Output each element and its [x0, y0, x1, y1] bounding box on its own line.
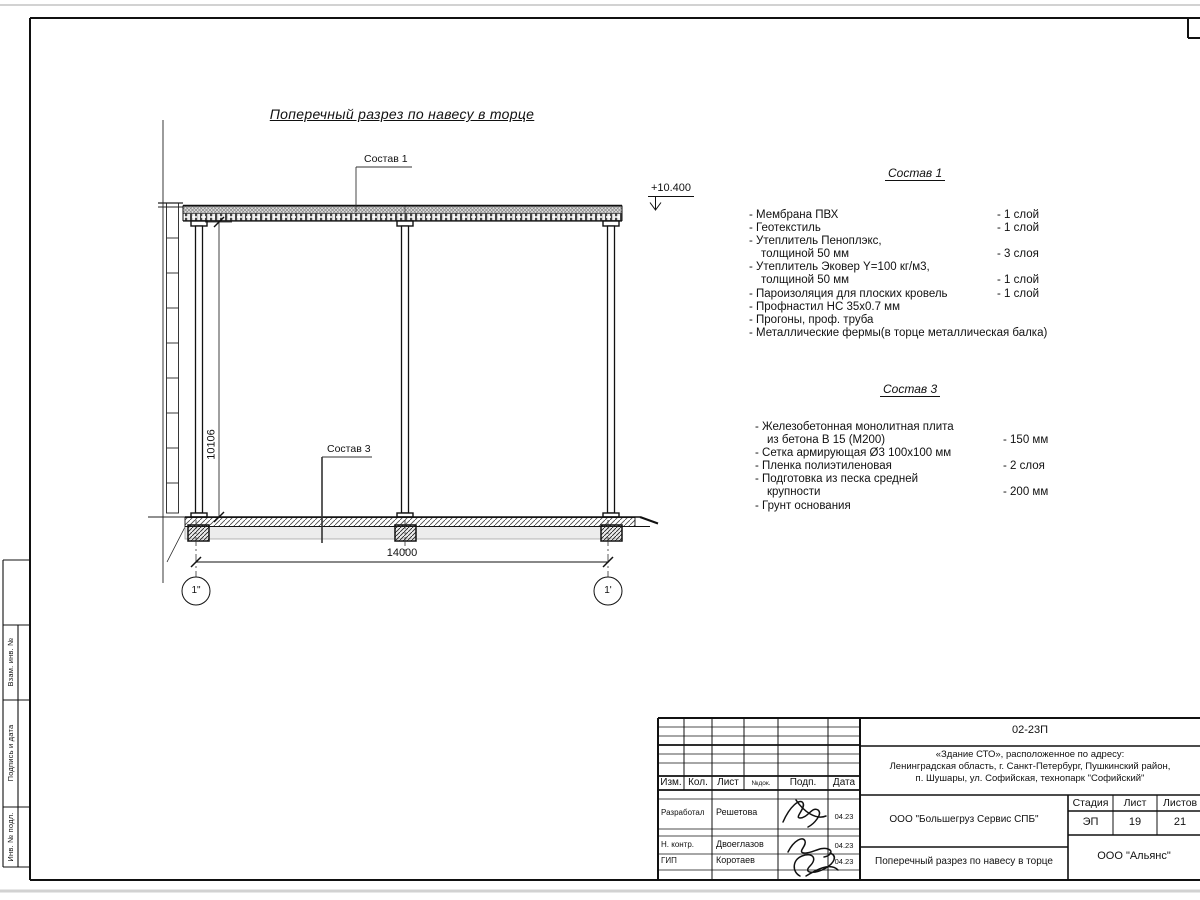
col-izm: Изм.	[658, 777, 684, 788]
dim-line-height	[205, 217, 232, 522]
drawing-title: Поперечный разрез по навесу в торце	[240, 106, 564, 122]
dim-width-value: 14000	[372, 547, 432, 559]
name-ncontrol: Двоеглазов	[716, 839, 764, 849]
elevation-value: +10.400	[646, 182, 696, 194]
side-stamp-label-inv: Инв. № подл.	[6, 802, 16, 872]
sheet-value: 19	[1113, 816, 1157, 828]
material-item: - Утеплитель Пеноплэкс, толщиной 50 мм- …	[749, 235, 1200, 261]
material-qty: - 1 слой	[997, 222, 1039, 235]
material-item: - Металлические фермы(в торце металличес…	[749, 327, 1200, 340]
sostav1-heading: Состав 1	[885, 166, 945, 181]
sheet-label: Лист	[1113, 797, 1157, 809]
axis-label-right: 1'	[594, 585, 622, 596]
titleblock-doc-title: Поперечный разрез по навесу в торце	[862, 856, 1066, 867]
col-ndok: №док.	[744, 780, 778, 787]
sheets-value: 21	[1160, 816, 1200, 828]
drawing-sheet: Поперечный разрез по навесу в торце Сост…	[0, 0, 1200, 900]
sheets-label: Листов	[1163, 797, 1197, 809]
material-item: - Профнастил НС 35х0.7 мм	[749, 301, 1200, 314]
ground-slab	[185, 517, 658, 539]
material-item: - Пароизоляция для плоских кровель- 1 сл…	[749, 288, 1200, 301]
material-item: - Мембрана ПВХ- 1 слой	[749, 209, 1200, 222]
project-address-line3: п. Шушары, ул. Софийская, технопарк "Соф…	[860, 773, 1200, 784]
leader-label-sostav3: Состав 3	[327, 443, 371, 455]
client-org: ООО "Большегруз Сервис СПБ"	[862, 814, 1066, 825]
material-name: - Прогоны, проф. труба	[749, 314, 873, 326]
roof-assembly	[183, 206, 622, 222]
project-address-line1: «Здание СТО», расположенное по адресу:	[860, 749, 1200, 760]
material-name: - Утеплитель Эковер Y=100 кг/м3, толщино…	[749, 261, 930, 286]
material-item: - Геотекстиль- 1 слой	[749, 222, 1200, 235]
side-stamp-label-vzam: Взам. инв. №	[6, 627, 16, 697]
material-qty: - 1 слой	[997, 288, 1039, 301]
material-item: - Утеплитель Эковер Y=100 кг/м3, толщино…	[749, 261, 1200, 287]
name-developer: Решетова	[716, 807, 757, 817]
material-qty: - 3 слоя	[997, 248, 1039, 261]
col-data: Дата	[828, 777, 860, 788]
material-name: - Утеплитель Пеноплэкс, толщиной 50 мм	[749, 235, 882, 260]
name-gip: Коротаев	[716, 855, 755, 865]
date-developer: 04.23	[830, 812, 858, 821]
role-gip: ГИП	[661, 856, 677, 865]
material-qty: - 1 слой	[997, 209, 1039, 222]
material-qty: - 150 мм	[1003, 434, 1048, 447]
dim-height-value: 10106	[206, 425, 219, 465]
material-item: - Грунт основания	[755, 500, 1200, 513]
sostav1-list: - Мембрана ПВХ- 1 слой - Геотекстиль- 1 …	[749, 209, 1200, 340]
material-name: - Металлические фермы(в торце металличес…	[749, 327, 1047, 339]
col-kol: Кол.	[684, 777, 712, 788]
material-name: - Сетка армирующая Ø3 100х100 мм	[755, 447, 951, 459]
material-name: - Геотекстиль	[749, 222, 821, 234]
material-item: - Подготовка из песка средней крупности-…	[755, 473, 1200, 499]
col-list: Лист	[712, 777, 744, 788]
stage-value: ЭП	[1068, 816, 1113, 828]
axis-circles	[182, 577, 622, 605]
leader-label-sostav1: Состав 1	[364, 153, 408, 165]
project-address-line2: Ленинградская область, г. Санкт-Петербур…	[860, 761, 1200, 772]
existing-building-wall	[148, 120, 185, 583]
material-qty: - 1 слой	[997, 274, 1039, 287]
side-stamp-label-podpis: Подпись и дата	[6, 718, 16, 788]
material-item: - Прогоны, проф. труба	[749, 314, 1200, 327]
material-item: - Пленка полиэтиленовая- 2 слоя	[755, 460, 1200, 473]
material-qty: - 2 слоя	[1003, 460, 1045, 473]
designer-org: ООО "Альянс"	[1068, 850, 1200, 862]
material-name: - Грунт основания	[755, 500, 851, 512]
axis-label-left: 1"	[182, 585, 210, 596]
material-item: - Железобетонная монолитная плита из бет…	[755, 421, 1200, 447]
material-name: - Подготовка из песка средней крупности	[755, 473, 918, 498]
role-ncontrol: Н. контр.	[661, 840, 694, 849]
material-qty: - 200 мм	[1003, 486, 1048, 499]
project-code: 02-23П	[860, 724, 1200, 736]
columns	[191, 221, 619, 517]
material-item: - Сетка армирующая Ø3 100х100 мм	[755, 447, 1200, 460]
col-podp: Подп.	[778, 777, 828, 788]
material-name: - Пленка полиэтиленовая	[755, 460, 892, 472]
material-name: - Пароизоляция для плоских кровель	[749, 288, 948, 300]
elevation-mark	[648, 197, 694, 211]
date-ncontrol: 04.23	[830, 841, 858, 850]
material-name: - Железобетонная монолитная плита из бет…	[755, 421, 954, 446]
date-gip: 04.23	[830, 857, 858, 866]
role-developer: Разработал	[661, 808, 705, 817]
sostav3-list: - Железобетонная монолитная плита из бет…	[755, 421, 1200, 513]
material-name: - Мембрана ПВХ	[749, 209, 838, 221]
sostav3-heading: Состав 3	[880, 382, 940, 397]
stage-label: Стадия	[1068, 797, 1113, 809]
material-name: - Профнастил НС 35х0.7 мм	[749, 301, 900, 313]
